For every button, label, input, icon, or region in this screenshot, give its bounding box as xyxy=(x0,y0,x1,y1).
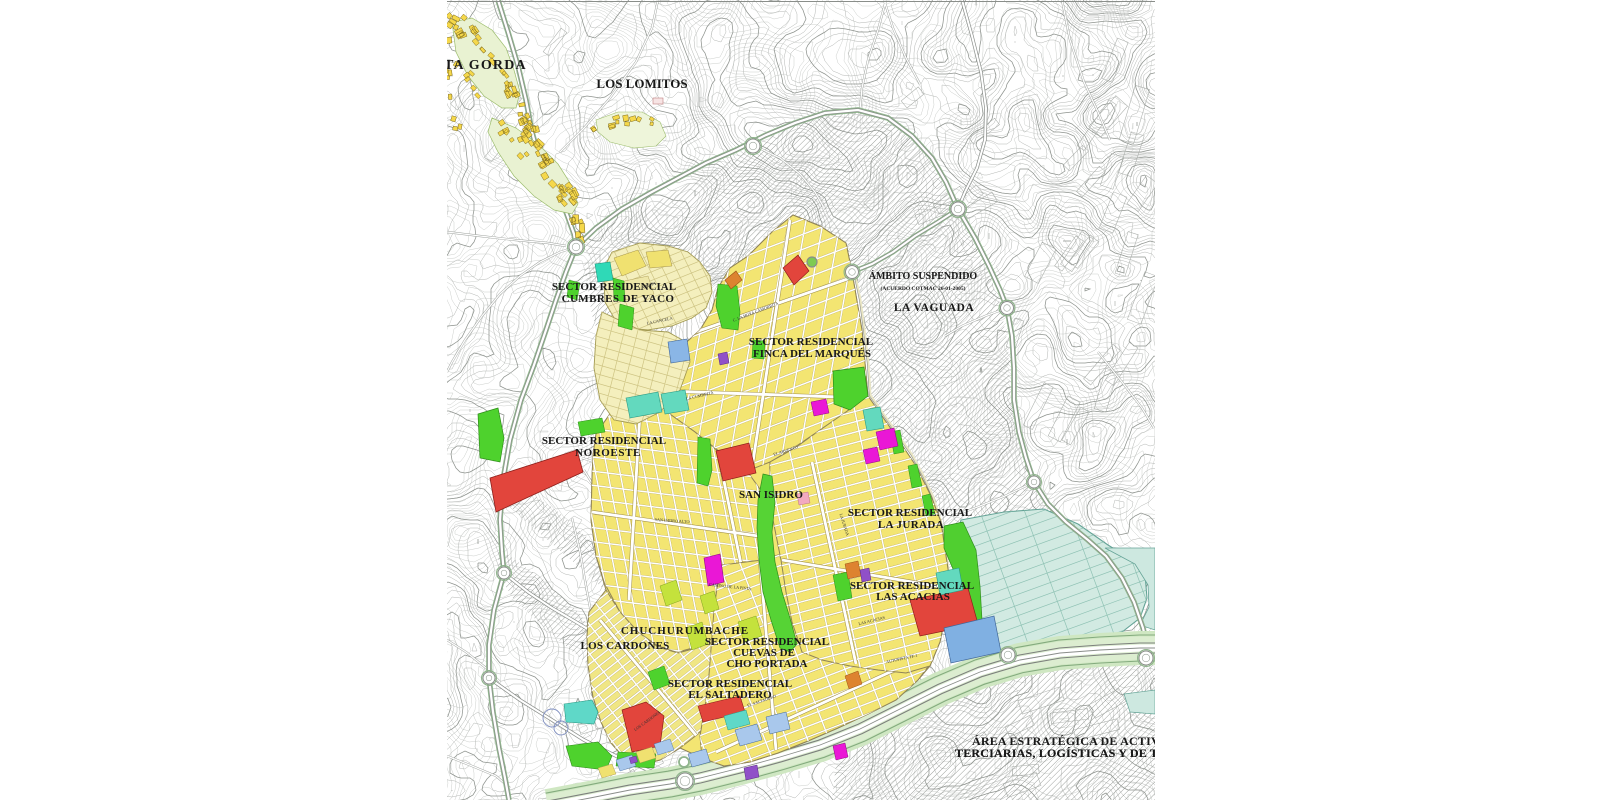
svg-text:LA VAGUADA: LA VAGUADA xyxy=(894,302,974,314)
svg-text:LOS LOMITOS: LOS LOMITOS xyxy=(596,76,687,91)
svg-text:NOROESTE: NOROESTE xyxy=(575,447,641,459)
svg-text:FINCA DEL MARQUÉS: FINCA DEL MARQUÉS xyxy=(753,348,871,360)
svg-text:CUMBRES DE YACO: CUMBRES DE YACO xyxy=(562,293,675,305)
svg-text:SAN ISIDRO: SAN ISIDRO xyxy=(739,489,803,501)
svg-text:TERCIARIAS, LOGÍSTICAS Y DE TR: TERCIARIAS, LOGÍSTICAS Y DE TRANSPORTE xyxy=(955,746,1233,760)
svg-text:ÁMBITO SUSPENDIDO: ÁMBITO SUSPENDIDO xyxy=(869,270,978,282)
svg-text:SECTOR RESIDENCIAL: SECTOR RESIDENCIAL xyxy=(542,435,666,447)
svg-text:LA JURADA: LA JURADA xyxy=(878,519,944,531)
svg-text:TA GORDA: TA GORDA xyxy=(444,58,527,73)
svg-text:CHO PORTADA: CHO PORTADA xyxy=(727,658,808,670)
svg-text:LAS ACACIAS: LAS ACACIAS xyxy=(876,591,950,603)
svg-text:SECTOR RESIDENCIAL: SECTOR RESIDENCIAL xyxy=(749,336,873,348)
svg-text:(ACUERDO COTMAC 26-01-2005): (ACUERDO COTMAC 26-01-2005) xyxy=(881,285,966,292)
svg-text:LOS CARDONES: LOS CARDONES xyxy=(581,640,670,652)
svg-text:SECTOR RESIDENCIAL: SECTOR RESIDENCIAL xyxy=(552,281,676,293)
svg-text:SECTOR RESIDENCIAL: SECTOR RESIDENCIAL xyxy=(848,507,972,519)
